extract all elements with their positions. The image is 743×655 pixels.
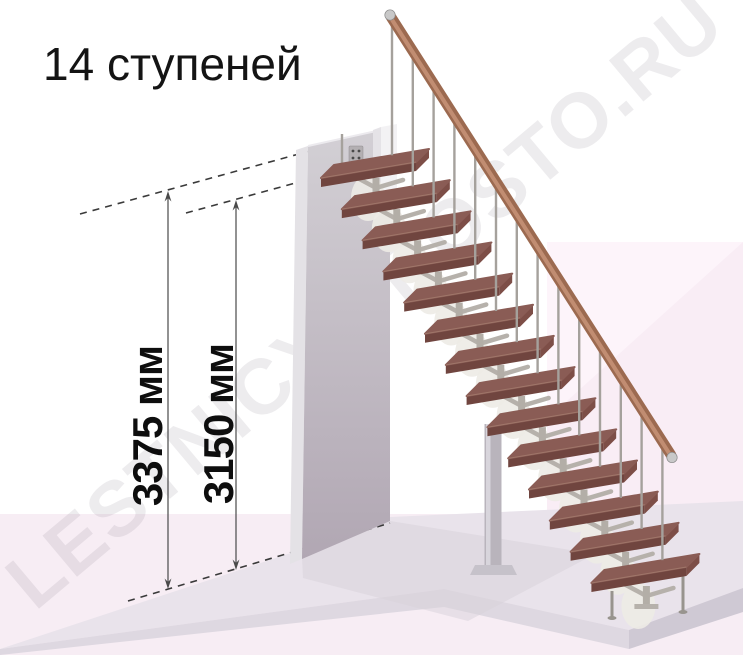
diagram-title: 14 ступеней <box>43 40 302 88</box>
bracket-foot <box>634 604 658 609</box>
column-base-plate <box>470 565 517 575</box>
dimension-label-3375: 3375 мм <box>125 316 171 536</box>
staircase-illustration: LESTNICY-PROSTO.RU <box>0 0 743 655</box>
staircase-diagram: LESTNICY-PROSTO.RU <box>0 0 743 655</box>
floor-leg-foot <box>679 610 688 614</box>
handrail-bottom-cap <box>667 452 677 462</box>
floor-leg-foot <box>608 616 617 620</box>
handrail-top-cap <box>385 10 395 20</box>
dimension-label-3150: 3150 мм <box>196 314 242 534</box>
